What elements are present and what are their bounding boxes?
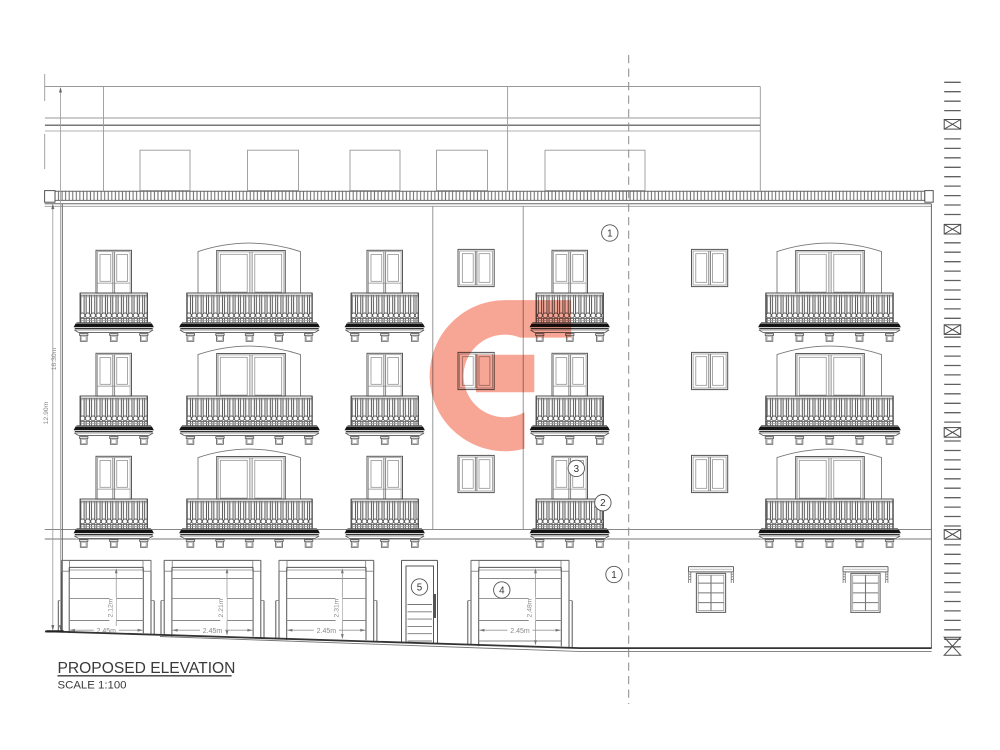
svg-text:SCALE 1:100: SCALE 1:100 <box>58 680 127 692</box>
svg-text:2.45m: 2.45m <box>510 628 530 635</box>
svg-text:PROPOSED ELEVATION: PROPOSED ELEVATION <box>58 660 236 677</box>
svg-text:12.90m: 12.90m <box>43 401 50 424</box>
svg-text:1: 1 <box>607 228 612 239</box>
svg-text:2.21m: 2.21m <box>218 598 225 617</box>
svg-text:4: 4 <box>499 585 505 596</box>
svg-text:3: 3 <box>574 464 580 475</box>
svg-text:2.45m: 2.45m <box>203 628 223 635</box>
svg-text:2.31m: 2.31m <box>333 598 340 617</box>
svg-text:5: 5 <box>417 582 423 593</box>
svg-text:2.48m: 2.48m <box>527 598 534 617</box>
svg-text:2.12m: 2.12m <box>107 598 114 617</box>
svg-text:2.45m: 2.45m <box>317 628 337 635</box>
svg-text:16.30m: 16.30m <box>51 347 58 370</box>
svg-text:1: 1 <box>611 570 616 581</box>
svg-text:2: 2 <box>600 498 605 509</box>
